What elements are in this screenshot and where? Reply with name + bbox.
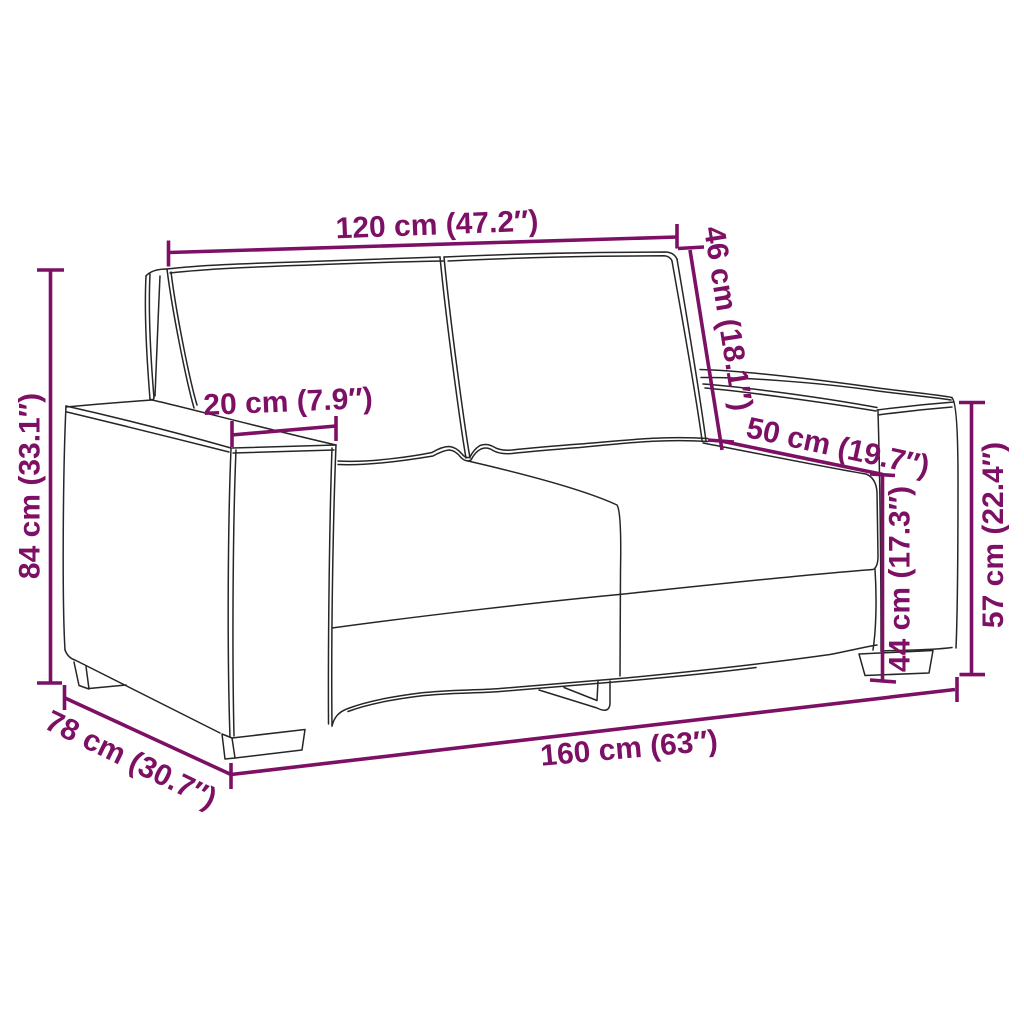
svg-text:84 cm (33.1″): 84 cm (33.1″) [14, 393, 47, 579]
svg-text:57 cm (22.4″): 57 cm (22.4″) [977, 442, 1010, 628]
svg-text:44 cm (17.3″): 44 cm (17.3″) [884, 486, 917, 672]
